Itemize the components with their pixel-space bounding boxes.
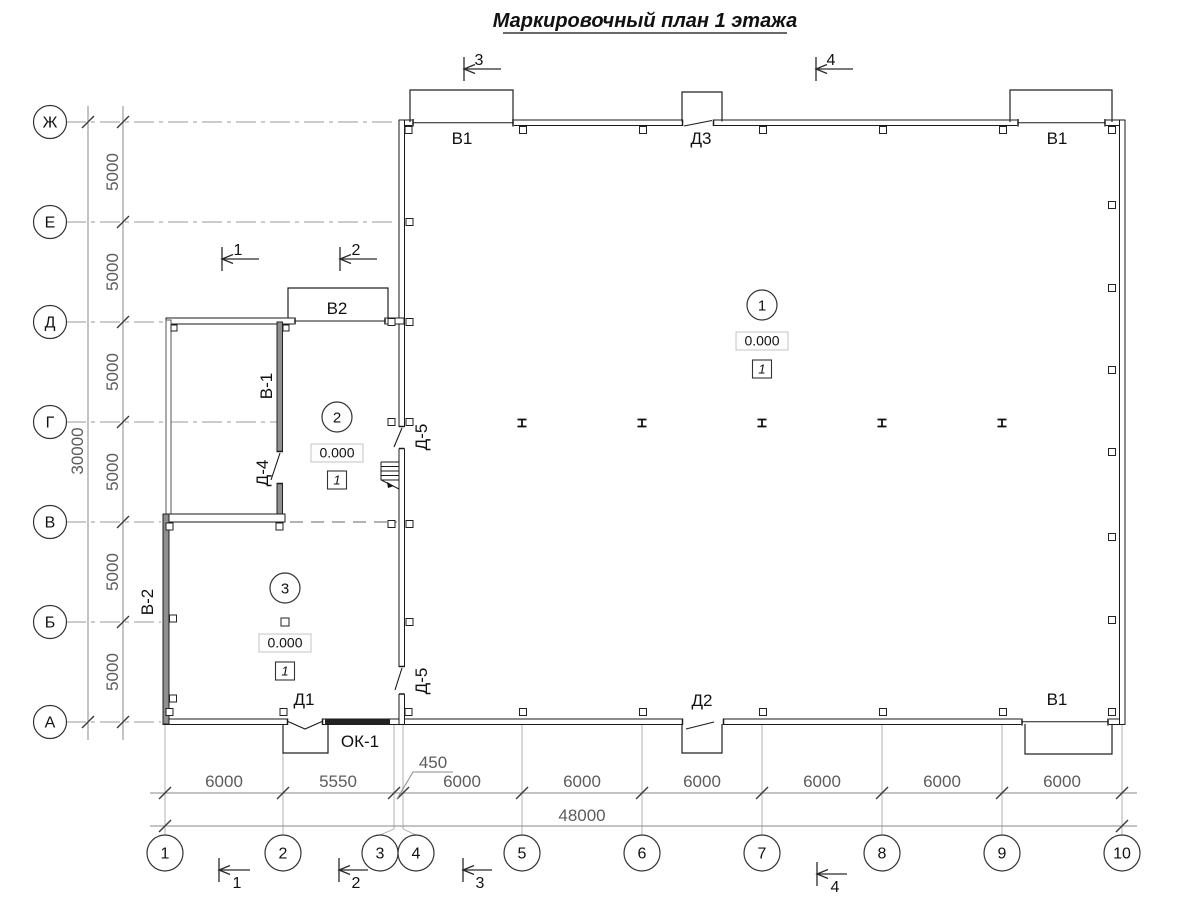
dim-6000-1: 6000 xyxy=(205,772,243,791)
dim-6000-5: 6000 xyxy=(803,772,841,791)
axis-label-9: 9 xyxy=(998,846,1007,863)
label-ok1: ОК-1 xyxy=(341,732,379,751)
dim-5000-6: 5000 xyxy=(103,653,122,691)
label-v1-top-right: В1 xyxy=(1047,129,1068,148)
room-2-number: 2 xyxy=(333,410,341,427)
dim-5000-2: 5000 xyxy=(103,253,122,291)
axis-label-6: 6 xyxy=(638,846,647,863)
room-2-elevation: 0.000 xyxy=(319,445,354,461)
room-3-floor-type: 1 xyxy=(281,664,288,679)
label-d3: Д3 xyxy=(691,129,712,148)
dim-6000-4: 6000 xyxy=(683,772,721,791)
dim-30000-total: 30000 xyxy=(68,427,87,474)
wall-hall-left xyxy=(399,120,405,725)
room-1-number: 1 xyxy=(758,298,766,315)
col-axis-circles: 1 2 3 4 5 6 7 8 9 10 xyxy=(147,835,1140,871)
wall-partition-v1 xyxy=(277,322,283,518)
dim-5000-1: 5000 xyxy=(103,153,122,191)
section-label-2-mid: 2 xyxy=(352,242,361,259)
section-label-1-mid: 1 xyxy=(234,242,243,259)
dim-6000-3: 6000 xyxy=(563,772,601,791)
room-3-number: 3 xyxy=(281,581,289,598)
label-d5-upper: Д-5 xyxy=(412,424,431,451)
dim-6000-2: 6000 xyxy=(443,772,481,791)
axis-label-b: Б xyxy=(45,615,56,632)
section-label-4-bottom: 4 xyxy=(831,879,840,896)
room-3-elevation: 0.000 xyxy=(267,635,302,651)
dim-5550: 5550 xyxy=(319,772,357,791)
axis-label-7: 7 xyxy=(758,846,767,863)
section-label-3-bottom: 3 xyxy=(476,875,485,892)
ok1-window-sill xyxy=(325,719,390,725)
page-title: Маркировочный план 1 этажа xyxy=(493,10,798,32)
axis-label-5: 5 xyxy=(518,846,527,863)
label-d4: Д-4 xyxy=(253,460,272,487)
dim-48000-total: 48000 xyxy=(558,806,605,825)
drawing-title: Маркировочный план 1 этажа xyxy=(493,10,798,33)
label-v1-partition: В-1 xyxy=(257,373,276,399)
axis-label-10: 10 xyxy=(1113,846,1131,863)
axis-label-8: 8 xyxy=(878,846,887,863)
axis-label-a: А xyxy=(45,715,56,732)
axis-label-v: В xyxy=(45,515,56,532)
wall-right xyxy=(1120,120,1126,725)
label-v1-bottom-right: В1 xyxy=(1047,690,1068,709)
paper-background xyxy=(0,0,1200,900)
axis-label-zh: Ж xyxy=(43,115,58,132)
label-d1: Д1 xyxy=(294,690,315,709)
room-1-elevation: 0.000 xyxy=(744,333,779,349)
axis-label-4: 4 xyxy=(412,846,421,863)
wall-exterior-v2 xyxy=(163,514,169,724)
section-label-1-bottom: 1 xyxy=(233,875,242,892)
wall-annex-left xyxy=(166,320,171,516)
section-label-3-top: 3 xyxy=(475,52,484,69)
label-v1-top-left: В1 xyxy=(452,129,473,148)
axis-label-g: Г xyxy=(46,415,55,432)
room-2-floor-type: 1 xyxy=(333,473,340,488)
axis-label-3: 3 xyxy=(376,846,385,863)
dim-6000-7: 6000 xyxy=(1043,772,1081,791)
section-label-4-top: 4 xyxy=(827,52,836,69)
dim-5000-4: 5000 xyxy=(103,453,122,491)
axis-label-d: Д xyxy=(45,315,56,332)
room-1-floor-type: 1 xyxy=(758,362,765,377)
floor-plan-drawing: Маркировочный план 1 этажа xyxy=(0,0,1200,900)
dim-450: 450 xyxy=(419,753,447,772)
label-v2-exterior: В-2 xyxy=(138,589,157,615)
dim-5000-5: 5000 xyxy=(103,553,122,591)
axis-label-1: 1 xyxy=(161,846,170,863)
axis-label-2: 2 xyxy=(279,846,288,863)
dim-6000-6: 6000 xyxy=(923,772,961,791)
floor-plan-page: Маркировочный план 1 этажа xyxy=(0,0,1200,900)
section-label-2-bottom: 2 xyxy=(352,875,361,892)
dim-5000-3: 5000 xyxy=(103,353,122,391)
label-d2: Д2 xyxy=(692,691,713,710)
wall-band-axis-v xyxy=(163,514,285,522)
label-v2: В2 xyxy=(327,299,348,318)
label-d5-lower: Д-5 xyxy=(412,668,431,695)
axis-label-e: Е xyxy=(45,215,56,232)
room-3-column-mark xyxy=(281,618,289,626)
